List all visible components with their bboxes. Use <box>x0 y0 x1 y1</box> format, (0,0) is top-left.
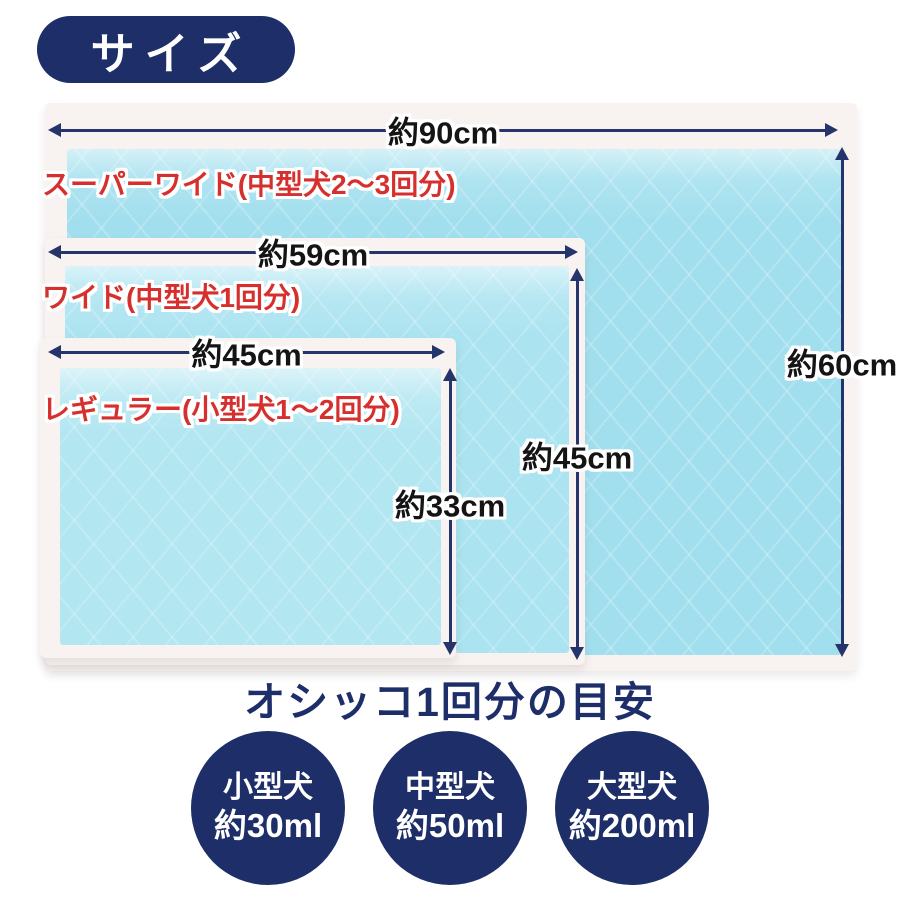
arrowhead-down-icon <box>570 647 584 660</box>
arrowhead-right-icon <box>432 345 445 359</box>
urine-amount-label: 約200ml <box>569 806 696 846</box>
arrowhead-right-icon <box>825 123 838 137</box>
size-badge: サイズ <box>37 16 295 83</box>
guide-circle-large-dog: 大型犬 約200ml <box>555 731 709 885</box>
guide-circle-small-dog: 小型犬 約30ml <box>191 731 345 885</box>
arrowhead-left-icon <box>48 123 61 137</box>
size-badge-label: サイズ <box>81 18 252 82</box>
dimension-label-width-super-wide: 約90cm <box>388 108 498 153</box>
dimension-arrow-width-wide: 約59cm <box>48 239 578 265</box>
dog-size-label: 小型犬 <box>223 770 313 806</box>
dimension-arrow-height-wide: 約45cm <box>564 268 590 660</box>
arrowhead-up-icon <box>835 147 849 160</box>
dimension-label-height-regular: 約33cm <box>395 481 505 526</box>
pad-label-wide: ワイド(中型犬1回分) <box>42 276 300 316</box>
pad-label-regular: レギュラー(小型犬1～2回分) <box>42 388 400 428</box>
dimension-label-height-wide: 約45cm <box>522 433 632 478</box>
dimension-label-height-super-wide: 約60cm <box>787 340 897 385</box>
arrowhead-down-icon <box>443 642 457 655</box>
dog-size-label: 大型犬 <box>587 770 677 806</box>
urine-amount-label: 約30ml <box>214 806 322 846</box>
dimension-arrow-width-super-wide: 約90cm <box>48 117 838 143</box>
pad-regular <box>40 338 456 658</box>
urine-amount-label: 約50ml <box>396 806 504 846</box>
arrowhead-down-icon <box>835 644 849 657</box>
arrowhead-up-icon <box>570 268 584 281</box>
arrow-line <box>841 156 844 648</box>
arrowhead-up-icon <box>443 368 457 381</box>
dimension-arrow-height-regular: 約33cm <box>437 368 463 655</box>
dog-size-label: 中型犬 <box>405 770 495 806</box>
guide-title: オシッコ1回分の目安 <box>0 668 900 728</box>
dimension-arrow-width-regular: 約45cm <box>48 339 445 365</box>
dimension-arrow-height-super-wide: 約60cm <box>829 147 855 657</box>
guide-circle-medium-dog: 中型犬 約50ml <box>373 731 527 885</box>
arrowhead-left-icon <box>48 245 61 259</box>
arrowhead-right-icon <box>565 245 578 259</box>
dimension-label-width-wide: 約59cm <box>258 230 368 275</box>
dimension-label-width-regular: 約45cm <box>191 330 301 375</box>
pad-label-super-wide: スーパーワイド(中型犬2～3回分) <box>42 163 456 203</box>
product-size-infographic: サイズ 約90cm 約59cm 約45cm 約60cm 約4 <box>0 0 900 900</box>
arrowhead-left-icon <box>48 345 61 359</box>
